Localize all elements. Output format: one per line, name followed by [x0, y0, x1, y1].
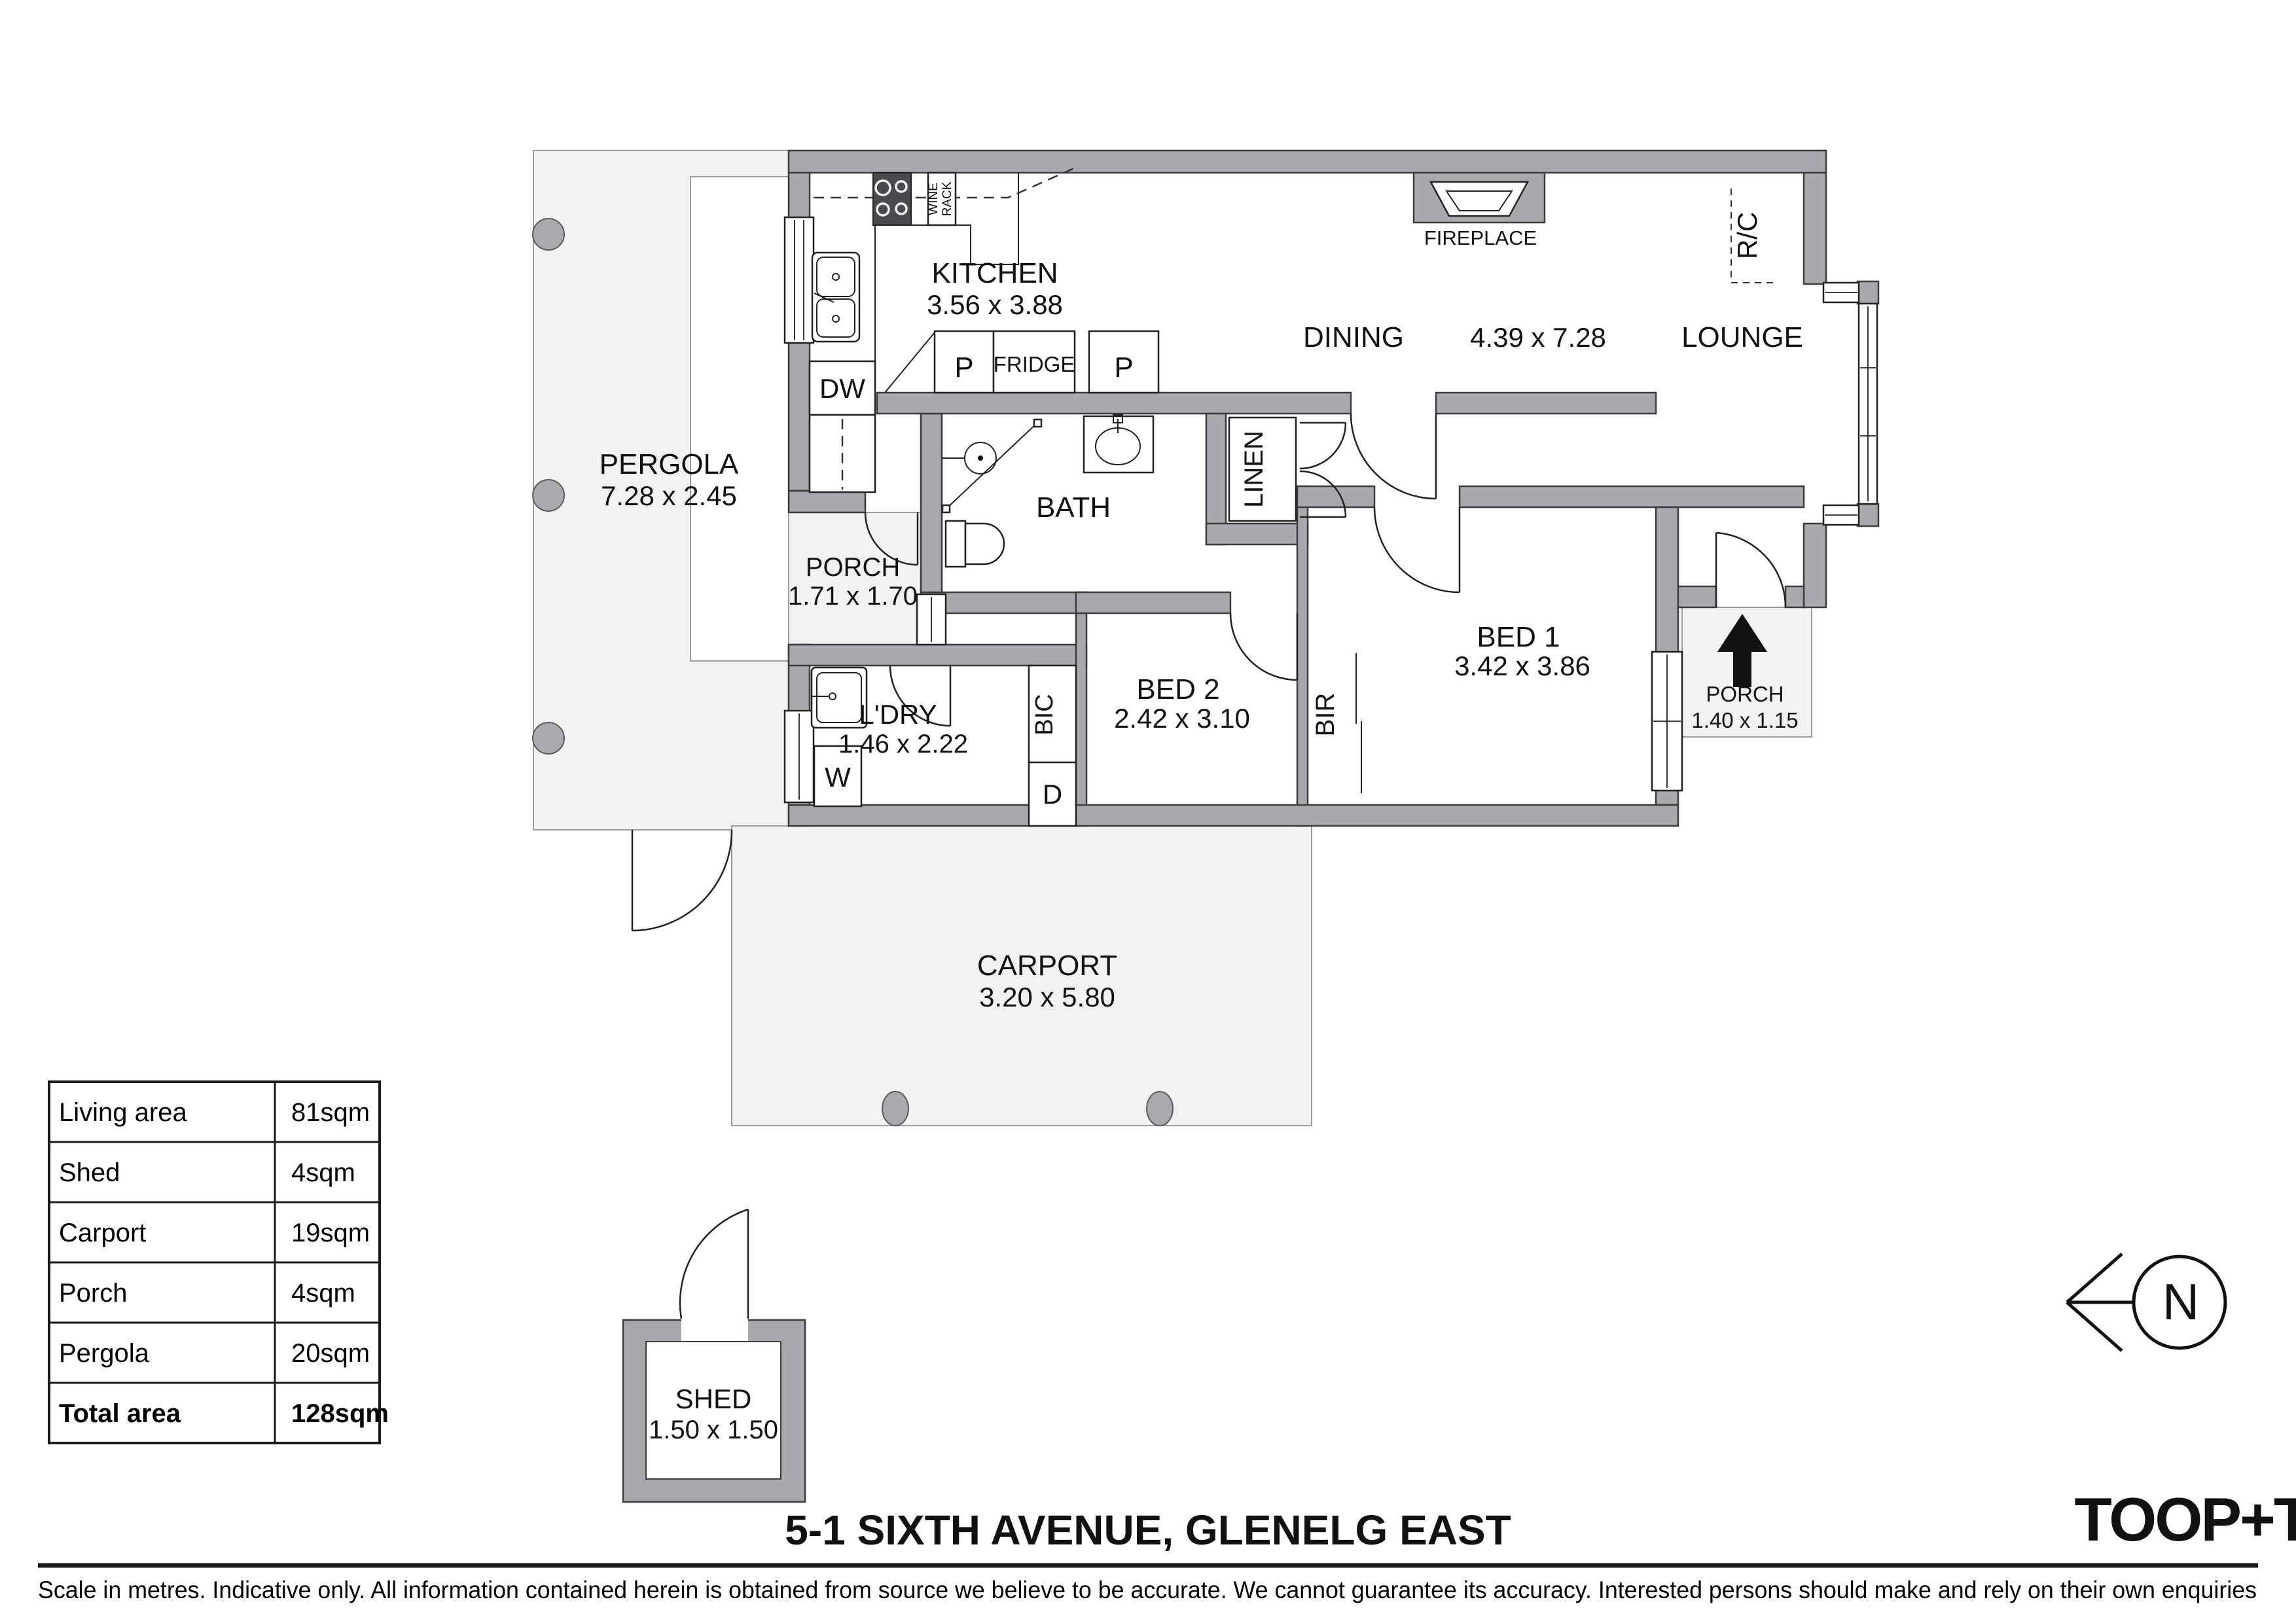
fireplace-label: FIREPLACE: [1424, 226, 1537, 249]
window-kitchen-west: [785, 217, 814, 343]
window-laundry-west: [785, 711, 814, 802]
table-row-value: 20sqm: [291, 1339, 370, 1368]
page-title: 5-1 SIXTH AVENUE, GLENELG EAST: [785, 1507, 1511, 1554]
pergola-post: [533, 722, 564, 754]
shed-label: SHED: [675, 1383, 752, 1414]
toilet-icon: [946, 521, 1004, 567]
pergola-post: [533, 480, 564, 511]
table-row-label: Shed: [59, 1158, 120, 1187]
bay-window: [1823, 283, 1877, 525]
entry-porch-dims: 1.40 x 1.15: [1691, 708, 1798, 732]
pantry-box-left: P: [935, 331, 994, 393]
wall-segment: [877, 393, 1351, 414]
bic-label: BIC: [1031, 694, 1058, 735]
table-total-label: Total area: [59, 1399, 181, 1428]
bir-sliding-door: [1356, 653, 1361, 793]
front-porch-dims: 1.71 x 1.70: [788, 582, 918, 611]
table-row-label: Carport: [59, 1219, 146, 1247]
wall-segment: [1785, 586, 1804, 607]
north-label: N: [2162, 1273, 2199, 1330]
washer-label: W: [825, 762, 851, 793]
laundry-dims: 1.46 x 2.22: [838, 730, 968, 758]
disclaimer: Scale in metres. Indicative only. All in…: [38, 1577, 2257, 1603]
kitchen-cabinet: [810, 415, 875, 492]
rc-label: R/C: [1732, 212, 1763, 259]
table-row-label: Living area: [59, 1098, 187, 1127]
pantry-corner-line: [885, 332, 935, 393]
shed-dims: 1.50 x 1.50: [649, 1416, 778, 1444]
wine-rack-label-2: RACK: [941, 181, 954, 216]
door-shed: [680, 1209, 748, 1319]
wall-segment: [789, 805, 1678, 826]
wall-segment: [1804, 524, 1826, 607]
linen-closet: LINEN: [1229, 418, 1296, 521]
bath-label: BATH: [1036, 491, 1111, 524]
wine-rack-label-1: WINE: [927, 183, 941, 215]
wall-segment: [1678, 586, 1716, 607]
bed1-dims: 3.42 x 3.86: [1454, 651, 1590, 681]
laundry-label: L'DRY: [859, 699, 937, 730]
door-bed2: [1230, 613, 1297, 680]
area-table: Living area 81sqm Shed 4sqm Carport 19sq…: [49, 1082, 389, 1443]
wall-segment: [789, 645, 1086, 666]
window-bed1-east: [1652, 652, 1682, 791]
carport-post: [882, 1092, 908, 1126]
dining-dims: 4.39 x 7.28: [1470, 322, 1606, 353]
north-arrow-icon: N: [2067, 1254, 2225, 1351]
stove-icon: [873, 173, 911, 225]
pergola-label: PERGOLA: [600, 448, 739, 480]
pantry-label: P: [1114, 351, 1133, 383]
wall-segment: [789, 151, 1826, 173]
dryer-box: D: [1029, 762, 1076, 826]
dishwasher-box: DW: [810, 361, 875, 415]
brand-logo: TOOP+TOOP: [2074, 1485, 2296, 1554]
kitchen-label: KITCHEN: [931, 257, 1058, 289]
table-row-value: 4sqm: [291, 1158, 355, 1187]
wall-segment: [1297, 486, 1308, 826]
pantry-box-right: P: [1089, 331, 1158, 393]
pantry-label: P: [954, 351, 973, 383]
bed2-dims: 2.42 x 3.10: [1114, 703, 1250, 734]
lounge-label: LOUNGE: [1681, 321, 1803, 353]
linen-label: LINEN: [1240, 431, 1268, 508]
bath-basin-icon: [1084, 415, 1153, 473]
wall-segment: [1206, 524, 1308, 544]
wine-rack: WINE RACK: [927, 173, 956, 225]
footer: 5-1 SIXTH AVENUE, GLENELG EAST TOOP+TOOP…: [38, 1485, 2296, 1603]
pergola-dims: 7.28 x 2.45: [601, 480, 737, 511]
bic-box: BIC: [1029, 666, 1076, 762]
kitchen-dims: 3.56 x 3.88: [927, 289, 1063, 320]
pergola-post: [533, 219, 564, 250]
entry-porch-label: PORCH: [1706, 682, 1784, 706]
wall-segment: [1460, 486, 1804, 507]
table-row-value: 4sqm: [291, 1279, 355, 1308]
door-carport-gate: [632, 830, 732, 931]
carport-dims: 3.20 x 5.80: [979, 982, 1115, 1012]
shower-icon: [942, 419, 1041, 512]
wall-segment: [1804, 173, 1826, 284]
carport-post: [1147, 1092, 1173, 1126]
bed1-label: BED 1: [1477, 621, 1560, 653]
bay-corner: [1857, 281, 1878, 304]
pergola-walkway: [691, 177, 789, 661]
fridge-box: FRIDGE: [994, 331, 1075, 393]
table-row-label: Porch: [59, 1279, 128, 1308]
wall-segment: [789, 491, 865, 512]
door-front-entry: [1716, 533, 1785, 607]
wall-segment: [1076, 592, 1086, 826]
table-row-label: Pergola: [59, 1339, 150, 1368]
wall-segment: [1436, 393, 1656, 414]
fridge-label: FRIDGE: [994, 352, 1075, 376]
table-row-value: 81sqm: [291, 1098, 370, 1127]
bir-label: BIR: [1311, 693, 1340, 737]
door-bed1: [1374, 507, 1460, 592]
wall-segment: [1076, 592, 1230, 613]
floorplan-canvas: WINE RACK DW P FRIDGE P: [0, 0, 2296, 1623]
window-bath-west: [917, 594, 946, 645]
kitchen-sink-icon: [812, 253, 859, 342]
bay-corner: [1857, 504, 1878, 526]
dishwasher-label: DW: [819, 373, 865, 404]
dining-label: DINING: [1303, 321, 1404, 353]
table-row-value: 19sqm: [291, 1219, 370, 1247]
front-porch-label: PORCH: [806, 553, 900, 582]
rc-unit: R/C: [1731, 188, 1775, 283]
bed2-label: BED 2: [1136, 673, 1219, 705]
shed: [623, 1209, 805, 1502]
table-total-value: 128sqm: [291, 1399, 389, 1428]
dryer-label: D: [1043, 779, 1062, 810]
carport-label: CARPORT: [977, 950, 1117, 982]
